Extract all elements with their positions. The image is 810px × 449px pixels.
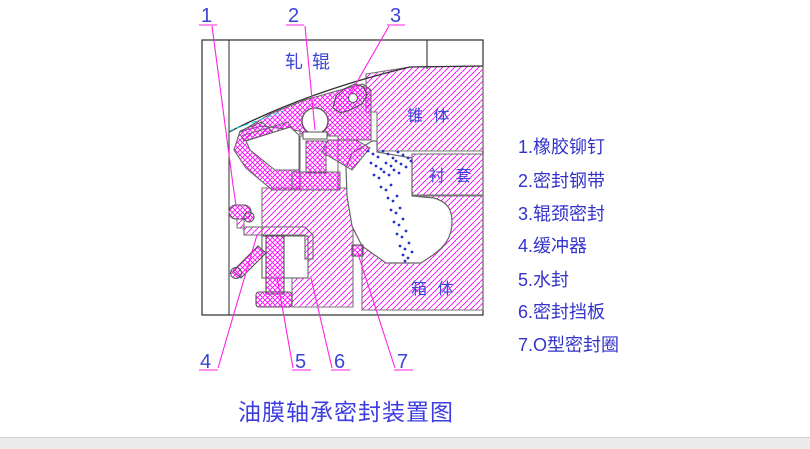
water-droplet xyxy=(402,154,405,157)
water-droplet xyxy=(398,172,401,175)
label-roll: 轧 辊 xyxy=(285,52,332,72)
label-housing: 箱 体 xyxy=(411,280,456,298)
callout-number-7: 7 xyxy=(397,351,408,373)
label-cone: 锥 体 xyxy=(407,107,452,125)
water-droplet xyxy=(404,260,407,263)
callout-number-1: 1 xyxy=(201,5,212,27)
water-droplet xyxy=(408,242,411,245)
water-droplet xyxy=(411,251,414,254)
seal-flange xyxy=(292,172,340,190)
water-droplet xyxy=(402,254,405,257)
water-droplet xyxy=(393,221,396,224)
callout-number-4: 4 xyxy=(200,351,211,373)
engineering-drawing-canvas: 1 2 3 4 5 6 7 轧 辊 锥 体 衬 套 箱 体 1.橡胶铆钉 2.密… xyxy=(0,0,810,448)
legend-item-5: 5.水封 xyxy=(518,270,569,290)
legend-item-2: 2.密封钢带 xyxy=(518,171,605,191)
water-droplet xyxy=(407,157,410,160)
water-droplet xyxy=(407,257,410,260)
water-droplet xyxy=(396,233,399,236)
water-droplet xyxy=(382,150,385,153)
water-droplet xyxy=(400,163,403,166)
water-droplet xyxy=(390,209,393,212)
water-droplet xyxy=(392,200,395,203)
water-droplet xyxy=(390,184,393,187)
water-droplet xyxy=(397,151,400,154)
water-droplet xyxy=(385,189,388,192)
water-droplet xyxy=(367,150,370,153)
water-droplet xyxy=(373,174,376,177)
water-droplet xyxy=(372,153,375,156)
legend-item-3: 3.辊颈密封 xyxy=(518,204,605,224)
callout-number-3: 3 xyxy=(390,5,401,27)
seal-center-stem xyxy=(306,141,326,173)
o-ring xyxy=(352,245,363,256)
water-droplet xyxy=(390,165,393,168)
callout-number-2: 2 xyxy=(288,5,299,27)
water-droplet xyxy=(399,245,402,248)
legend-item-1: 1.橡胶铆钉 xyxy=(518,137,605,157)
seal-ring-seat xyxy=(303,132,327,139)
water-droplet xyxy=(398,224,401,227)
water-droplet xyxy=(404,248,407,251)
water-droplet xyxy=(387,197,390,200)
callout-number-5: 5 xyxy=(295,351,306,373)
water-droplet xyxy=(388,174,391,177)
water-droplet xyxy=(395,160,398,163)
water-droplet xyxy=(377,156,380,159)
water-droplet xyxy=(375,165,378,168)
legend-item-7: 7.O型密封圈 xyxy=(518,335,619,355)
seal-ring-circle xyxy=(302,108,328,134)
water-droplet xyxy=(370,162,373,165)
water-droplet xyxy=(396,195,399,198)
water-droplet xyxy=(399,207,402,210)
callout-number-6: 6 xyxy=(334,351,345,373)
legend-item-6: 6.密封挡板 xyxy=(518,302,605,322)
water-droplet xyxy=(393,169,396,172)
water-droplet xyxy=(410,160,413,163)
window-bottom-bar xyxy=(0,437,810,449)
water-droplet xyxy=(380,168,383,171)
water-droplet xyxy=(378,177,381,180)
water-droplet xyxy=(405,230,408,233)
water-seal-foot xyxy=(256,292,292,307)
water-droplet xyxy=(402,218,405,221)
water-droplet xyxy=(392,157,395,160)
water-droplet xyxy=(383,171,386,174)
water-droplet xyxy=(395,212,398,215)
water-droplet xyxy=(387,153,390,156)
legend-item-4: 4.缓冲器 xyxy=(518,236,587,256)
buffer-riser xyxy=(237,219,244,228)
water-droplet xyxy=(405,166,408,169)
water-droplet xyxy=(401,236,404,239)
rubber-rivet-bump xyxy=(244,212,254,222)
water-droplet xyxy=(380,186,383,189)
legend: 1.橡胶铆钉 2.密封钢带 3.辊颈密封 4.缓冲器 5.水封 6.密封挡板 7… xyxy=(518,137,619,355)
water-seal-flipper-end xyxy=(231,268,242,279)
label-bushing: 衬 套 xyxy=(429,167,474,185)
drawing-title: 油膜轴承密封装置图 xyxy=(238,399,454,425)
water-seal-bar xyxy=(266,236,284,294)
water-droplet xyxy=(385,162,388,165)
